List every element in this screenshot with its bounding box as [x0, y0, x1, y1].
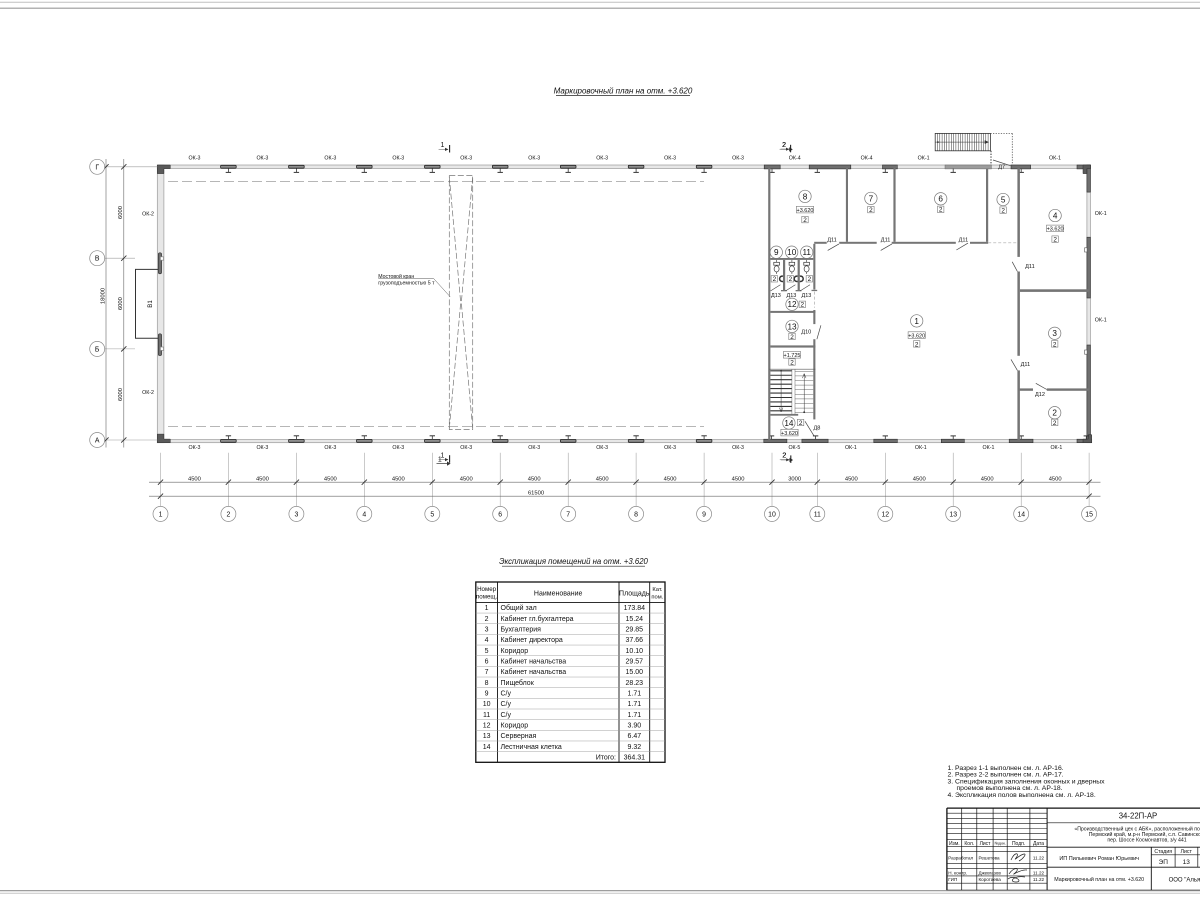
svg-text:В: В	[95, 256, 100, 263]
svg-text:ОК-3: ОК-3	[324, 156, 336, 162]
svg-text:ОК-4: ОК-4	[789, 156, 801, 162]
svg-text:2: 2	[1001, 208, 1005, 215]
svg-text:6: 6	[938, 195, 943, 204]
svg-text:С/у: С/у	[501, 712, 512, 719]
svg-text:2: 2	[801, 302, 805, 309]
svg-text:2: 2	[1053, 341, 1057, 348]
svg-text:помещ.: помещ.	[476, 594, 498, 601]
svg-text:Кабинет директора: Кабинет директора	[501, 636, 563, 644]
svg-text:5: 5	[1001, 195, 1006, 204]
svg-text:34-22П-АР: 34-22П-АР	[1119, 812, 1158, 821]
svg-text:ОК-3: ОК-3	[664, 156, 676, 162]
svg-text:Лист: Лист	[980, 841, 992, 847]
svg-text:28.23: 28.23	[626, 680, 644, 687]
svg-text:Д11: Д11	[959, 237, 969, 243]
svg-text:ОК-1: ОК-1	[915, 445, 927, 451]
svg-text:ОК-3: ОК-3	[460, 445, 472, 451]
svg-text:11: 11	[814, 511, 821, 518]
svg-text:ОК-5: ОК-5	[788, 445, 800, 451]
svg-text:А: А	[95, 438, 100, 445]
svg-text:10: 10	[768, 511, 776, 518]
svg-text:4500: 4500	[188, 477, 201, 483]
svg-text:ОК-3: ОК-3	[664, 445, 676, 451]
svg-text:2: 2	[773, 276, 777, 283]
svg-text:2: 2	[939, 207, 943, 214]
svg-text:4: 4	[1053, 211, 1058, 220]
svg-text:13: 13	[949, 511, 957, 518]
svg-text:14: 14	[483, 744, 491, 751]
svg-text:Изм.: Изм.	[949, 841, 960, 847]
svg-text:С/у: С/у	[501, 691, 512, 698]
svg-text:9.32: 9.32	[627, 744, 641, 751]
svg-text:ООО "Альянс": ООО "Альянс"	[1169, 878, 1200, 884]
svg-text:Д12: Д12	[1035, 392, 1045, 398]
svg-text:ОК-2: ОК-2	[142, 390, 154, 396]
svg-text:Д11: Д11	[1021, 362, 1031, 368]
svg-text:2: 2	[803, 217, 807, 224]
svg-text:+3.620: +3.620	[1047, 227, 1064, 233]
svg-text:ОК-3: ОК-3	[392, 445, 404, 451]
svg-text:№док.: №док.	[994, 841, 1006, 846]
svg-text:Экспликация помещений на отм.: Экспликация помещений на отм. +3.620	[499, 557, 648, 566]
svg-text:+3.620: +3.620	[781, 431, 798, 437]
svg-text:12: 12	[881, 511, 889, 518]
svg-text:4500: 4500	[392, 477, 405, 483]
svg-text:7: 7	[566, 511, 570, 518]
svg-text:9: 9	[774, 248, 779, 257]
svg-text:4500: 4500	[460, 477, 473, 483]
svg-text:4. Экспликация полов выполнена: 4. Экспликация полов выполнена см. л. АР…	[948, 792, 1096, 799]
svg-text:4500: 4500	[528, 477, 541, 483]
svg-text:Кабинет гл.бухгалтера: Кабинет гл.бухгалтера	[501, 615, 574, 623]
svg-text:1: 1	[914, 317, 919, 326]
svg-text:3: 3	[485, 627, 489, 634]
svg-text:Кабинет начальства: Кабинет начальства	[501, 668, 567, 676]
svg-text:11.22: 11.22	[1033, 870, 1045, 875]
svg-text:ОК-3: ОК-3	[324, 445, 336, 451]
svg-text:37.66: 37.66	[626, 637, 644, 644]
svg-text:4: 4	[485, 637, 489, 644]
svg-text:2: 2	[789, 276, 793, 283]
svg-text:11.22: 11.22	[1033, 855, 1045, 860]
svg-text:5: 5	[430, 511, 434, 518]
svg-text:6: 6	[498, 511, 502, 518]
svg-text:Д8: Д8	[814, 425, 821, 431]
svg-text:ОК-3: ОК-3	[732, 445, 744, 451]
svg-text:18000: 18000	[100, 288, 106, 304]
svg-text:29.85: 29.85	[626, 627, 644, 634]
svg-text:Подп.: Подп.	[1012, 841, 1025, 847]
svg-text:ОК-3: ОК-3	[188, 445, 200, 451]
svg-text:1: 1	[441, 142, 445, 149]
svg-text:Кол.: Кол.	[964, 841, 974, 847]
svg-text:Коротаева: Коротаева	[979, 877, 1002, 882]
svg-text:1: 1	[159, 511, 163, 518]
svg-text:Коридор: Коридор	[501, 648, 529, 655]
svg-text:ОК-1: ОК-1	[1095, 211, 1107, 217]
svg-text:В1: В1	[147, 300, 154, 308]
svg-text:ОК-2: ОК-2	[142, 212, 154, 218]
svg-text:10: 10	[787, 248, 797, 257]
svg-text:10.10: 10.10	[626, 648, 644, 655]
svg-text:Джевгазов: Джевгазов	[979, 870, 1002, 875]
svg-text:8: 8	[485, 680, 489, 687]
svg-text:Б: Б	[95, 346, 100, 353]
svg-text:13: 13	[1183, 859, 1191, 866]
svg-text:11.22: 11.22	[1033, 877, 1045, 882]
svg-text:2: 2	[485, 616, 489, 623]
svg-text:пер. Шоссе Космонавтов, з/у 44: пер. Шоссе Космонавтов, з/у 441	[1107, 838, 1186, 844]
svg-text:6: 6	[485, 659, 489, 666]
svg-text:Д13: Д13	[801, 293, 811, 299]
svg-text:4500: 4500	[913, 477, 926, 483]
svg-text:ОК-3: ОК-3	[256, 445, 268, 451]
svg-text:173.84: 173.84	[624, 605, 646, 612]
svg-text:4500: 4500	[981, 477, 994, 483]
svg-text:13: 13	[787, 322, 797, 331]
svg-text:4500: 4500	[732, 477, 745, 483]
svg-text:3: 3	[294, 511, 298, 518]
svg-text:ОК-3: ОК-3	[392, 156, 404, 162]
svg-text:ОК-3: ОК-3	[460, 156, 472, 162]
svg-text:9: 9	[485, 691, 489, 698]
svg-text:ОК-1: ОК-1	[845, 445, 857, 451]
svg-text:2: 2	[1052, 409, 1057, 418]
svg-text:С/у: С/у	[501, 701, 512, 708]
svg-text:ОК-4: ОК-4	[861, 156, 873, 162]
svg-text:Пищеблок: Пищеблок	[501, 679, 535, 687]
svg-text:4500: 4500	[845, 477, 858, 483]
svg-text:4500: 4500	[324, 477, 337, 483]
svg-text:+1.725: +1.725	[784, 353, 801, 359]
svg-text:Лестничная клетка: Лестничная клетка	[501, 744, 562, 751]
svg-text:ОК-1: ОК-1	[1095, 318, 1107, 324]
svg-text:Маркировочный план на отм. +3.: Маркировочный план на отм. +3.620	[1054, 876, 1144, 883]
svg-text:5: 5	[485, 648, 489, 655]
svg-text:2: 2	[915, 341, 919, 348]
svg-text:1.71: 1.71	[627, 712, 641, 719]
svg-text:14: 14	[784, 419, 794, 428]
svg-text:11: 11	[483, 712, 490, 719]
svg-text:2: 2	[790, 334, 794, 341]
svg-text:15.00: 15.00	[626, 669, 644, 676]
svg-text:15: 15	[1085, 511, 1093, 518]
svg-text:ОК-3: ОК-3	[528, 445, 540, 451]
svg-text:29.57: 29.57	[626, 659, 644, 666]
svg-text:Коридор: Коридор	[501, 722, 529, 729]
svg-text:12: 12	[483, 722, 491, 729]
svg-text:Кат.: Кат.	[652, 587, 662, 593]
svg-text:Маркировочный план на отм. +3: Маркировочный план на отм. +3.620	[554, 86, 693, 95]
svg-text:ИП Пилькевич Роман Юрьевич: ИП Пилькевич Роман Юрьевич	[1059, 856, 1139, 862]
svg-text:3.90: 3.90	[627, 722, 641, 729]
svg-text:Д7: Д7	[998, 164, 1005, 170]
svg-text:ГИП: ГИП	[948, 877, 957, 882]
svg-text:1: 1	[485, 605, 489, 612]
svg-text:ОК-1: ОК-1	[983, 445, 995, 451]
svg-text:ОК-1: ОК-1	[918, 156, 930, 162]
svg-text:6000: 6000	[118, 388, 124, 401]
svg-text:3: 3	[1052, 329, 1057, 338]
svg-text:ОК-1: ОК-1	[1049, 156, 1061, 162]
svg-text:2: 2	[799, 420, 803, 427]
svg-text:Д11: Д11	[827, 237, 837, 243]
svg-text:1.71: 1.71	[627, 701, 641, 708]
svg-text:4500: 4500	[664, 477, 677, 483]
svg-text:8: 8	[634, 511, 638, 518]
svg-text:Д13: Д13	[771, 293, 781, 299]
svg-text:1.71: 1.71	[627, 691, 641, 698]
svg-text:14: 14	[1017, 511, 1025, 518]
svg-text:ОК-3: ОК-3	[256, 156, 268, 162]
svg-text:Д11: Д11	[1025, 264, 1035, 270]
svg-text:Дата: Дата	[1033, 841, 1044, 847]
svg-text:Решетова: Решетова	[979, 855, 1001, 860]
svg-text:ОК-1: ОК-1	[1050, 445, 1062, 451]
svg-text:9: 9	[702, 511, 706, 518]
svg-text:364.31: 364.31	[624, 754, 646, 761]
svg-text:Д11: Д11	[881, 237, 891, 243]
svg-text:Д10: Д10	[801, 330, 811, 336]
svg-text:2: 2	[782, 142, 786, 149]
svg-text:Номер: Номер	[477, 586, 497, 593]
svg-text:61500: 61500	[528, 491, 544, 497]
svg-text:+3.620: +3.620	[908, 333, 925, 339]
svg-text:2: 2	[782, 453, 786, 460]
svg-text:2: 2	[808, 276, 812, 283]
svg-text:ОК-3: ОК-3	[732, 156, 744, 162]
svg-text:грузоподъемностью 5 т: грузоподъемностью 5 т	[378, 281, 435, 287]
svg-text:ОК-3: ОК-3	[596, 445, 608, 451]
svg-text:3000: 3000	[788, 477, 801, 483]
svg-text:Общий зал: Общий зал	[501, 604, 537, 612]
svg-text:Г: Г	[95, 164, 99, 171]
svg-text:11: 11	[802, 248, 811, 257]
svg-text:7: 7	[869, 194, 874, 203]
svg-text:13: 13	[483, 733, 491, 740]
svg-text:Площадь: Площадь	[619, 591, 650, 598]
svg-text:4500: 4500	[256, 477, 269, 483]
svg-text:ОК-3: ОК-3	[596, 156, 608, 162]
svg-text:4: 4	[362, 511, 366, 518]
svg-text:Н. контр.: Н. контр.	[948, 870, 967, 875]
svg-text:ЭП: ЭП	[1159, 859, 1169, 866]
svg-text:ОК-3: ОК-3	[188, 156, 200, 162]
svg-text:ОК-3: ОК-3	[528, 156, 540, 162]
svg-text:Бухгалтерия: Бухгалтерия	[501, 627, 542, 634]
svg-text:7: 7	[485, 669, 489, 676]
svg-text:4500: 4500	[1049, 477, 1062, 483]
svg-text:2: 2	[1053, 237, 1057, 244]
svg-text:10: 10	[483, 701, 491, 708]
svg-text:Наименование: Наименование	[534, 591, 583, 598]
svg-text:2: 2	[1053, 420, 1057, 427]
svg-text:12: 12	[787, 300, 797, 309]
svg-text:Лист: Лист	[1181, 849, 1193, 855]
svg-text:1: 1	[441, 452, 445, 459]
svg-text:6000: 6000	[118, 206, 124, 219]
svg-text:2: 2	[790, 359, 794, 366]
svg-text:пом.: пом.	[651, 595, 663, 601]
svg-text:Итого:: Итого:	[596, 754, 616, 761]
svg-text:+3.620: +3.620	[797, 208, 814, 214]
svg-text:4500: 4500	[596, 477, 609, 483]
svg-text:Кабинет начальства: Кабинет начальства	[501, 658, 567, 666]
svg-text:15.24: 15.24	[626, 616, 644, 623]
svg-text:6000: 6000	[118, 297, 124, 310]
svg-text:6.47: 6.47	[627, 733, 641, 740]
svg-text:Серверная: Серверная	[501, 733, 537, 740]
svg-text:2: 2	[226, 511, 230, 518]
svg-text:Стадия: Стадия	[1154, 849, 1172, 855]
svg-text:8: 8	[803, 192, 808, 201]
svg-text:Разработал: Разработал	[948, 855, 973, 860]
svg-text:2: 2	[869, 207, 873, 214]
